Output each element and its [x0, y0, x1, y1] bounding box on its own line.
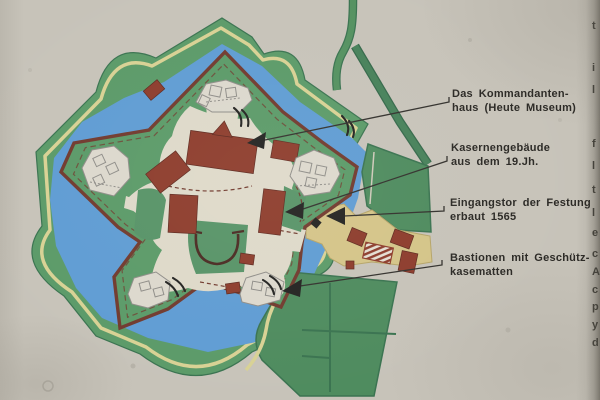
label-line: haus (Heute Museum) [452, 102, 576, 116]
edge-fragment: c [592, 248, 598, 260]
label-kommandantenhaus: Das Kommandanten- haus (Heute Museum) [452, 88, 576, 115]
edge-fragment: l [592, 207, 595, 219]
edge-fragment: f [592, 138, 596, 150]
label-line: Eingangstor der Festung [450, 197, 591, 211]
label-line: Kasernengebäude [451, 142, 550, 156]
label-line: aus dem 19.Jh. [451, 156, 550, 170]
label-eingangstor: Eingangstor der Festung erbaut 1565 [450, 197, 591, 224]
edge-fragment: i [592, 62, 595, 74]
label-line: Bastionen mit Geschütz- [450, 252, 590, 266]
edge-fragment: l [592, 160, 595, 172]
edge-fragment: A [592, 266, 600, 278]
edge-fragment: y [592, 319, 598, 331]
edge-fragment: c [592, 284, 598, 296]
label-bastionen: Bastionen mit Geschütz- kasematten [450, 252, 590, 279]
edge-fragment: p [592, 301, 599, 313]
label-kaserne: Kasernengebäude aus dem 19.Jh. [451, 142, 550, 169]
fortress-sign-photo: Das Kommandanten- haus (Heute Museum) Ka… [0, 0, 600, 400]
edge-fragment: e [592, 227, 598, 239]
sign-edge-fragments: tilfltlecAcpyd [591, 0, 600, 400]
label-line: kasematten [450, 266, 590, 280]
edge-fragment: t [592, 184, 596, 196]
label-line: erbaut 1565 [450, 211, 591, 225]
label-line: Das Kommandanten- [452, 88, 576, 102]
edge-fragment: t [592, 20, 596, 32]
edge-fragment: d [592, 337, 599, 349]
building-southwest [168, 194, 198, 233]
edge-fragment: l [592, 84, 595, 96]
